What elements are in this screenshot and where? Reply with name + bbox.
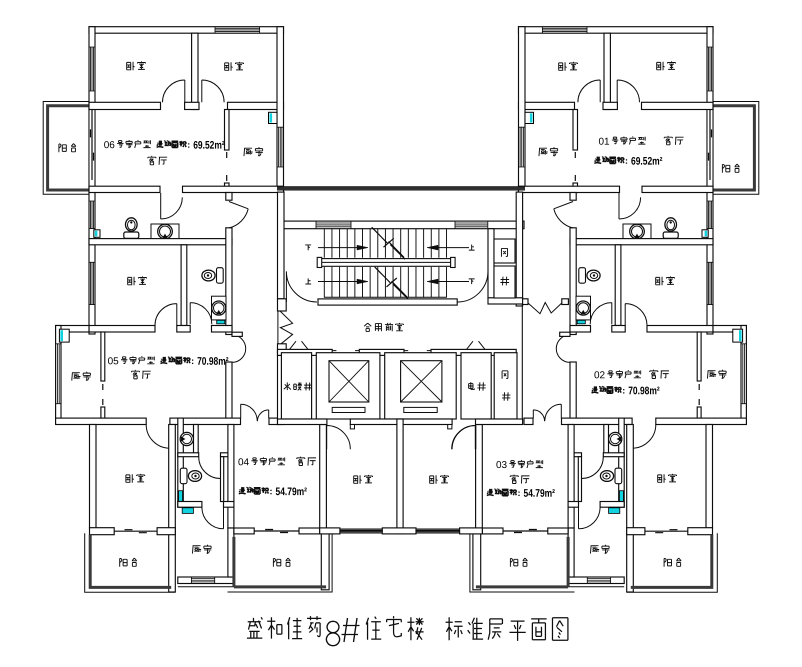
- svg-text:04: 04: [238, 457, 250, 468]
- svg-text:70.98m²: 70.98m²: [197, 356, 229, 368]
- svg-text:69.52m²: 69.52m²: [631, 156, 663, 168]
- svg-text:70.98m²: 70.98m²: [628, 385, 660, 397]
- svg-text:05: 05: [108, 356, 120, 367]
- svg-text::: :: [187, 140, 190, 150]
- svg-text:54.79m²: 54.79m²: [523, 488, 555, 500]
- svg-text:54.79m²: 54.79m²: [275, 486, 307, 498]
- svg-text:06: 06: [104, 140, 116, 151]
- svg-text:69.52m²: 69.52m²: [193, 140, 225, 152]
- svg-text::: :: [622, 386, 625, 396]
- svg-text:03: 03: [496, 460, 508, 471]
- svg-text:02: 02: [594, 370, 606, 381]
- svg-text::: :: [269, 486, 272, 496]
- svg-text::: :: [191, 356, 194, 366]
- svg-text::: :: [625, 156, 628, 166]
- svg-text::: :: [517, 488, 520, 498]
- svg-text:01: 01: [598, 137, 610, 148]
